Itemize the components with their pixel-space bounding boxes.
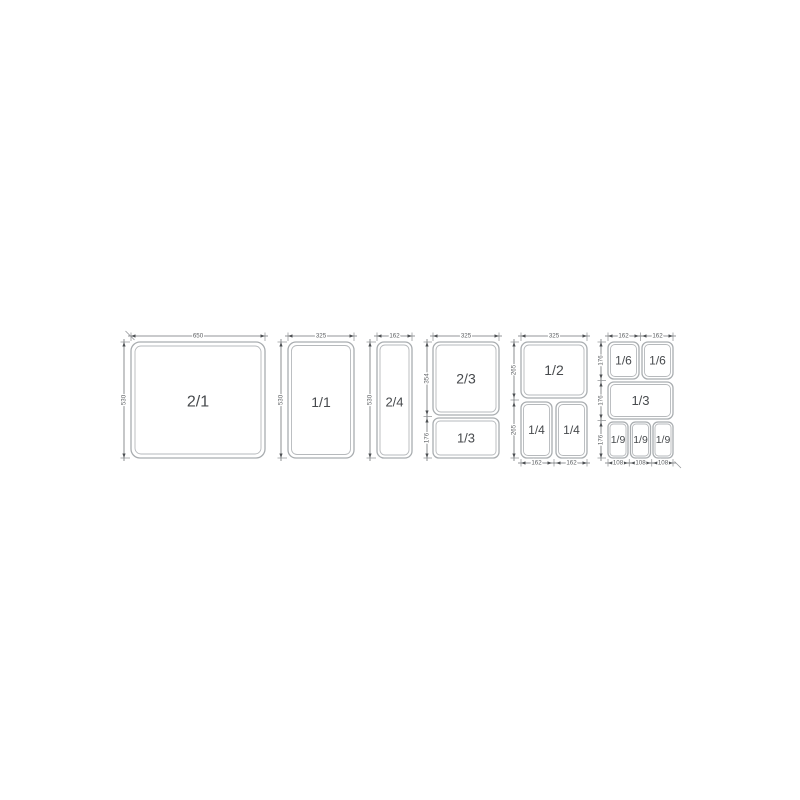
gn-pan-size-diagram: 2/1 650 530 1/1 325 530	[0, 0, 800, 800]
panel-gn-1-2-1-4: 1/2 1/4 1/4 325 265 265 162 162	[511, 333, 591, 467]
dim-label-depth: 176	[598, 355, 605, 366]
arrow-down-icon	[279, 454, 282, 459]
arrow-right-icon	[646, 461, 651, 464]
pan-label-1-6: 1/6	[649, 354, 666, 368]
dim-label-depth: 530	[121, 394, 128, 405]
dim-label-width: 325	[549, 333, 560, 340]
dim-label-depth: 265	[511, 424, 518, 435]
arrow-down-icon	[425, 411, 428, 416]
arrow-up-icon	[599, 382, 602, 387]
arrow-right-icon	[669, 461, 674, 464]
arrow-up-icon	[425, 342, 428, 347]
arrow-up-icon	[512, 402, 515, 407]
dim-label-depth: 530	[367, 394, 374, 405]
arrow-right-icon	[548, 461, 553, 464]
pan-label-2-4: 2/4	[385, 395, 403, 410]
arrow-up-icon	[425, 418, 428, 423]
pan-label-1-2: 1/2	[544, 362, 564, 378]
arrow-down-icon	[512, 454, 515, 459]
pan-label-1-4: 1/4	[563, 423, 580, 437]
arrow-down-icon	[368, 454, 371, 459]
dim-label-width: 162	[652, 333, 663, 340]
pan-label-1-9: 1/9	[633, 434, 648, 446]
dim-label-width: 325	[461, 333, 472, 340]
arrow-left-icon	[608, 334, 613, 337]
pan-label-1-1: 1/1	[311, 394, 331, 410]
arrow-left-icon	[433, 334, 438, 337]
arrow-right-icon	[583, 461, 588, 464]
diagram-canvas: 2/1 650 530 1/1 325 530	[0, 0, 800, 800]
arrow-left-icon	[608, 461, 613, 464]
arrow-right-icon	[350, 334, 355, 337]
pan-label-2-1: 2/1	[187, 394, 209, 411]
dim-label-width: 108	[658, 460, 669, 467]
arrow-down-icon	[425, 454, 428, 459]
arrow-left-icon	[556, 461, 561, 464]
arrow-right-icon	[635, 334, 640, 337]
arrow-down-icon	[599, 454, 602, 459]
arrow-up-icon	[279, 342, 282, 347]
arrow-left-icon	[288, 334, 293, 337]
arrow-left-icon	[631, 461, 636, 464]
arrow-up-icon	[512, 342, 515, 347]
pan-label-1-9: 1/9	[656, 434, 671, 446]
dim-label-width: 325	[316, 333, 327, 340]
pan-label-1-9: 1/9	[611, 434, 626, 446]
dim-label-width: 108	[635, 460, 646, 467]
panel-gn-1-6-1-3-1-9: 1/6 1/6 1/3 1/9 1/9 1/9 162 162 176	[598, 333, 682, 469]
pan-label-1-6: 1/6	[615, 354, 632, 368]
pan-label-2-3: 2/3	[456, 371, 476, 387]
arrow-up-icon	[599, 342, 602, 347]
arrow-left-icon	[377, 334, 382, 337]
arrow-up-icon	[599, 422, 602, 427]
panel-gn-2-3-1-3: 2/3 1/3 325 354 176	[424, 333, 503, 462]
arrow-up-icon	[122, 342, 125, 347]
arrow-right-icon	[408, 334, 413, 337]
dim-label-width: 162	[389, 333, 400, 340]
dim-label-depth: 176	[598, 395, 605, 406]
dim-label-depth: 265	[511, 364, 518, 375]
panel-gn-2-1: 2/1 650 530	[121, 331, 269, 461]
dim-label-width: 162	[618, 333, 629, 340]
arrow-right-icon	[495, 334, 500, 337]
dim-label-width: 162	[531, 460, 542, 467]
pan-label-1-3: 1/3	[457, 431, 475, 446]
arrow-right-icon	[261, 334, 266, 337]
arrow-left-icon	[653, 461, 658, 464]
arrow-right-icon	[624, 461, 629, 464]
arrow-left-icon	[521, 461, 526, 464]
dim-label-depth: 176	[424, 432, 431, 443]
arrow-left-icon	[521, 334, 526, 337]
pan-label-1-4: 1/4	[528, 423, 545, 437]
dim-label-depth: 176	[598, 434, 605, 445]
dim-label-depth: 530	[278, 394, 285, 405]
dim-label-depth: 354	[424, 373, 431, 384]
arrow-right-icon	[583, 334, 588, 337]
arrow-right-icon	[669, 334, 674, 337]
pan-label-1-3: 1/3	[631, 393, 649, 408]
end-tick	[675, 462, 682, 469]
arrow-down-icon	[512, 394, 515, 399]
arrow-down-icon	[122, 454, 125, 459]
dim-label-width: 108	[613, 460, 624, 467]
arrow-up-icon	[368, 342, 371, 347]
arrow-left-icon	[642, 334, 647, 337]
arrow-down-icon	[599, 375, 602, 380]
dim-label-width: 650	[193, 333, 204, 340]
dim-label-width: 162	[566, 460, 577, 467]
panel-gn-1-1: 1/1 325 530	[278, 333, 358, 462]
panel-gn-2-4: 2/4 162 530	[367, 333, 416, 462]
arrow-down-icon	[599, 415, 602, 420]
